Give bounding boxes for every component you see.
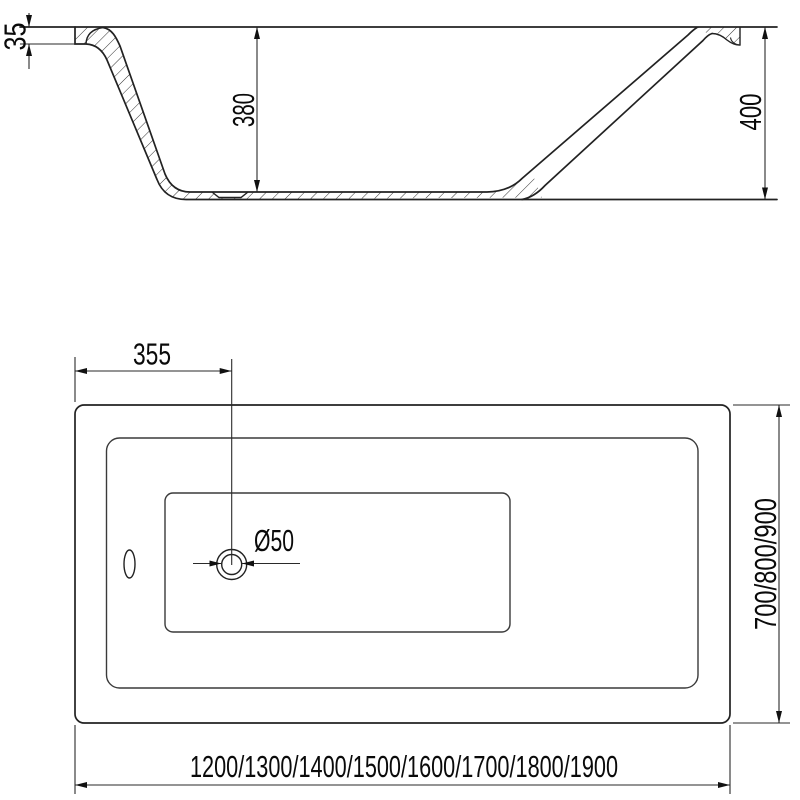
overflow-outline [124, 550, 135, 578]
width-options-label: 700/800/900 [748, 498, 783, 630]
wall-section-hatch [75, 27, 542, 200]
top-plan-view: 355 Ø50 700/800/900 1200/1300/1400/1500/… [75, 337, 790, 795]
inner-wall-and-slope-line [103, 28, 697, 193]
side-section-view: 35 380 400 [0, 13, 777, 200]
depth-label: 380 [226, 93, 261, 127]
right-slope-outer-line [522, 34, 712, 200]
rim-height-label: 35 [0, 23, 33, 51]
outer-wall-and-floor-line [75, 27, 777, 200]
tub-outer-edge [75, 405, 730, 723]
drain-offset-label: 355 [133, 337, 171, 372]
drawing-canvas: 35 380 400 355 Ø50 700/800/900 1200 [0, 0, 800, 800]
drain-diameter-label: Ø50 [254, 523, 294, 558]
length-options-label: 1200/1300/1400/1500/1600/1700/1800/1900 [190, 749, 618, 784]
height-label: 400 [733, 94, 768, 131]
bathtub-technical-drawing: 35 380 400 355 Ø50 700/800/900 1200 [0, 0, 800, 800]
